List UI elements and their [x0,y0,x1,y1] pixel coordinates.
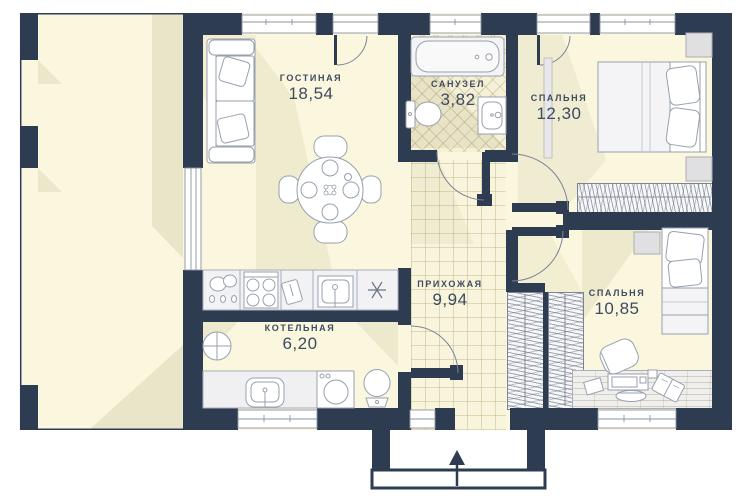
boiler-door-leaf [411,365,463,380]
window-boiler [238,410,317,428]
entrance [372,430,545,488]
room-area: 9,94 [380,290,520,310]
window-living-left [185,168,201,270]
window-swing-living [337,36,367,65]
room-area: 6,20 [230,334,370,354]
plate [301,182,317,198]
window-entry-sidelight [410,410,435,428]
room-name: ПРИХОЖАЯ [380,279,520,289]
kitchen-sink [318,276,353,307]
plate [322,160,338,176]
chair [314,221,347,243]
pillow [666,65,701,106]
room-label-bedroom-1: СПАЛЬНЯ 12,30 [489,93,629,124]
room-label-boiler: КОТЕЛЬНАЯ 6,20 [230,323,370,354]
terrace-posts [20,13,38,430]
kitchen-counter [203,270,398,310]
plate [322,204,338,220]
nightstand [686,157,712,181]
room-name: КОТЕЛЬНАЯ [230,323,370,333]
room-label-bedroom-2: СПАЛЬНЯ 10,85 [547,288,687,319]
room-label-living: ГОСТИНАЯ 18,54 [241,73,381,104]
laundry-sink [246,378,284,407]
paper [584,378,604,395]
chair [279,176,299,203]
room-area: 18,54 [241,84,381,104]
pillow [666,107,701,148]
cup [345,174,352,181]
room-name: САНУЗЕЛ [388,79,528,89]
room-area: 12,30 [489,104,629,124]
window-living-top [242,15,316,33]
window-bedroom-2 [598,410,676,428]
washing-machine [317,371,354,408]
room-name: СПАЛЬНЯ [489,93,629,103]
window-bedroom-1-right [600,15,675,33]
window-leaf-living [334,35,337,65]
room-name: ГОСТИНАЯ [241,73,381,83]
bathtub [411,37,504,76]
bowl [616,391,646,402]
window-leaf-bedroom-1 [537,35,540,65]
chair [361,176,381,203]
nightstand [634,232,660,254]
stove [244,272,278,308]
desk-chair [597,336,642,377]
table-decor [324,185,336,195]
boiler [203,332,231,360]
room-label-hallway: ПРИХОЖАЯ 9,94 [380,279,520,310]
window-living-door [333,15,378,33]
porch-step [372,470,545,488]
floor-plan: ГОСТИНАЯ 18,54 САНУЗЕЛ 3,82 СПАЛЬНЯ 12,3… [0,0,752,502]
window-bedroom-1-left [537,15,590,33]
pillow [668,258,703,287]
plate [343,182,359,198]
nightstand [686,33,712,57]
bathroom-door-leaf [477,152,492,206]
room-name: СПАЛЬНЯ [547,288,687,298]
room-area: 10,85 [547,299,687,319]
chair [314,136,347,158]
boiler-toilet [364,370,390,408]
window-bathroom [430,15,481,33]
